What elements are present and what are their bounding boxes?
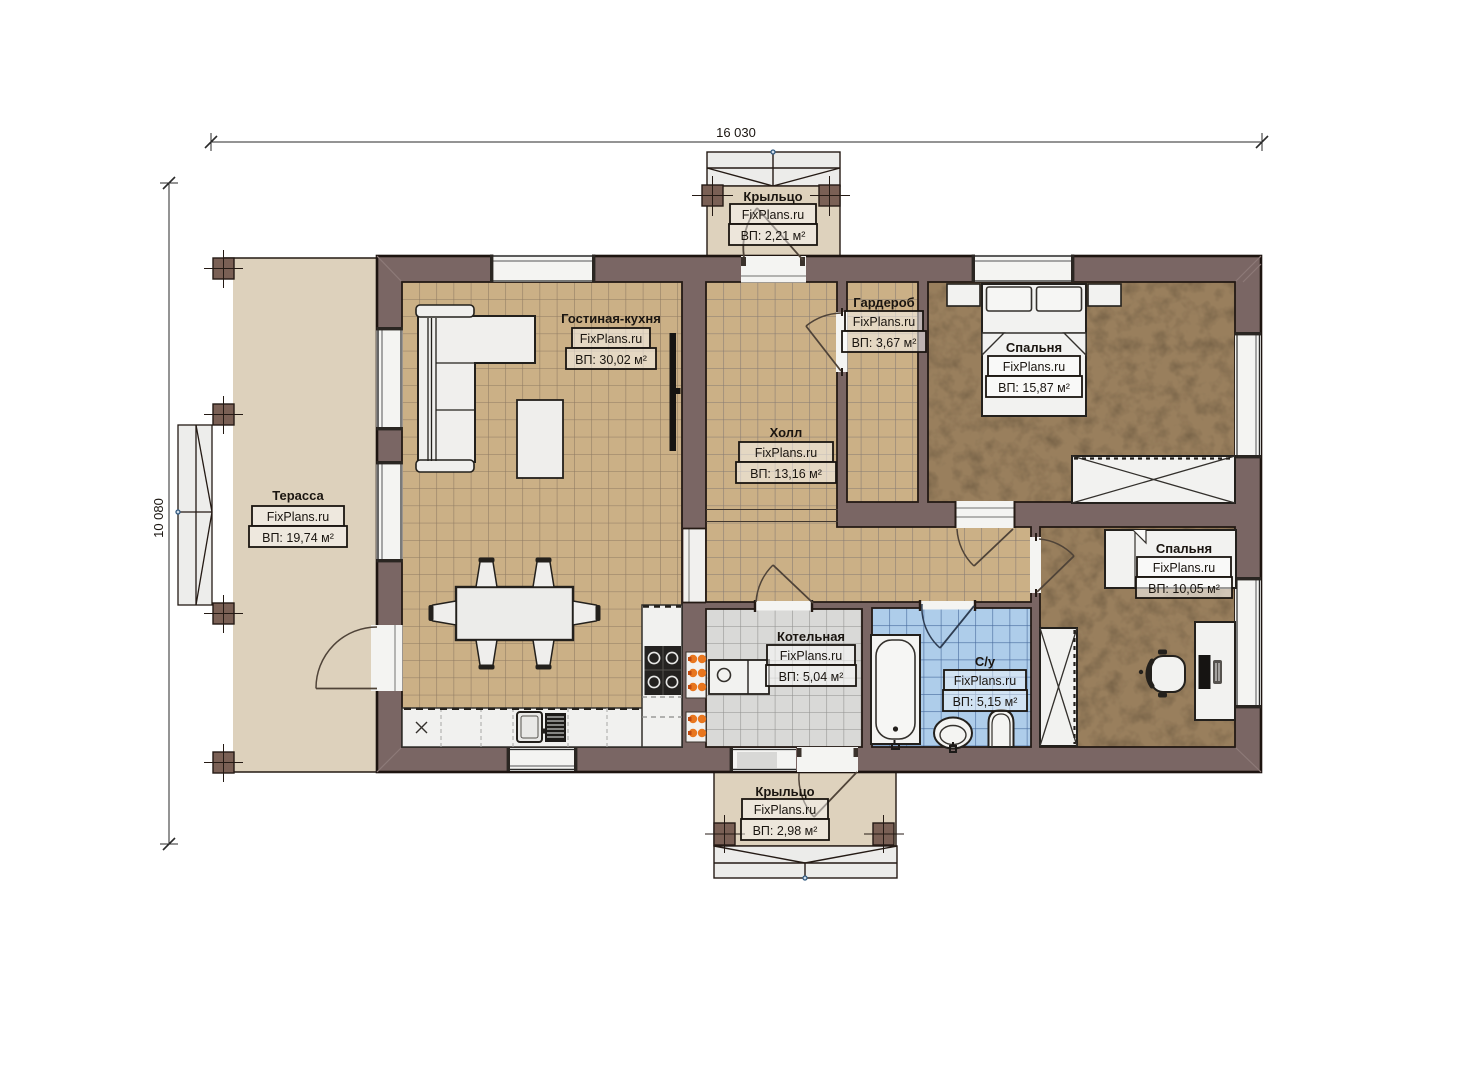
svg-text:FixPlans.ru: FixPlans.ru — [267, 510, 330, 524]
svg-text:FixPlans.ru: FixPlans.ru — [755, 446, 818, 460]
svg-text:ВП: 5,04 м²: ВП: 5,04 м² — [779, 670, 844, 684]
svg-text:ВП: 2,21 м²: ВП: 2,21 м² — [741, 229, 806, 243]
svg-text:FixPlans.ru: FixPlans.ru — [742, 208, 805, 222]
svg-text:FixPlans.ru: FixPlans.ru — [780, 649, 843, 663]
svg-text:ВП: 30,02 м²: ВП: 30,02 м² — [575, 353, 647, 367]
svg-text:Крыльцо: Крыльцо — [755, 784, 814, 799]
svg-text:FixPlans.ru: FixPlans.ru — [954, 674, 1017, 688]
svg-text:ВП: 2,98 м²: ВП: 2,98 м² — [753, 824, 818, 838]
svg-text:Холл: Холл — [770, 425, 803, 440]
svg-text:FixPlans.ru: FixPlans.ru — [1003, 360, 1066, 374]
svg-text:Котельная: Котельная — [777, 629, 845, 644]
svg-text:16 030: 16 030 — [716, 125, 756, 140]
svg-text:С/у: С/у — [975, 654, 996, 669]
svg-text:FixPlans.ru: FixPlans.ru — [580, 332, 643, 346]
svg-text:ВП: 10,05 м²: ВП: 10,05 м² — [1148, 582, 1220, 596]
svg-text:FixPlans.ru: FixPlans.ru — [1153, 561, 1216, 575]
svg-text:Крыльцо: Крыльцо — [743, 189, 802, 204]
svg-text:ВП: 15,87 м²: ВП: 15,87 м² — [998, 381, 1070, 395]
svg-text:FixPlans.ru: FixPlans.ru — [853, 315, 916, 329]
svg-text:Спальня: Спальня — [1156, 541, 1212, 556]
svg-text:Гардероб: Гардероб — [853, 295, 914, 310]
svg-text:ВП: 3,67 м²: ВП: 3,67 м² — [852, 336, 917, 350]
svg-text:FixPlans.ru: FixPlans.ru — [754, 803, 817, 817]
svg-text:10 080: 10 080 — [151, 498, 166, 538]
svg-text:ВП: 19,74 м²: ВП: 19,74 м² — [262, 531, 334, 545]
svg-text:ВП: 5,15 м²: ВП: 5,15 м² — [953, 695, 1018, 709]
svg-text:ВП: 13,16 м²: ВП: 13,16 м² — [750, 467, 822, 481]
svg-text:Терасса: Терасса — [272, 488, 324, 503]
svg-text:Спальня: Спальня — [1006, 340, 1062, 355]
svg-text:Гостиная-кухня: Гостиная-кухня — [561, 311, 661, 326]
